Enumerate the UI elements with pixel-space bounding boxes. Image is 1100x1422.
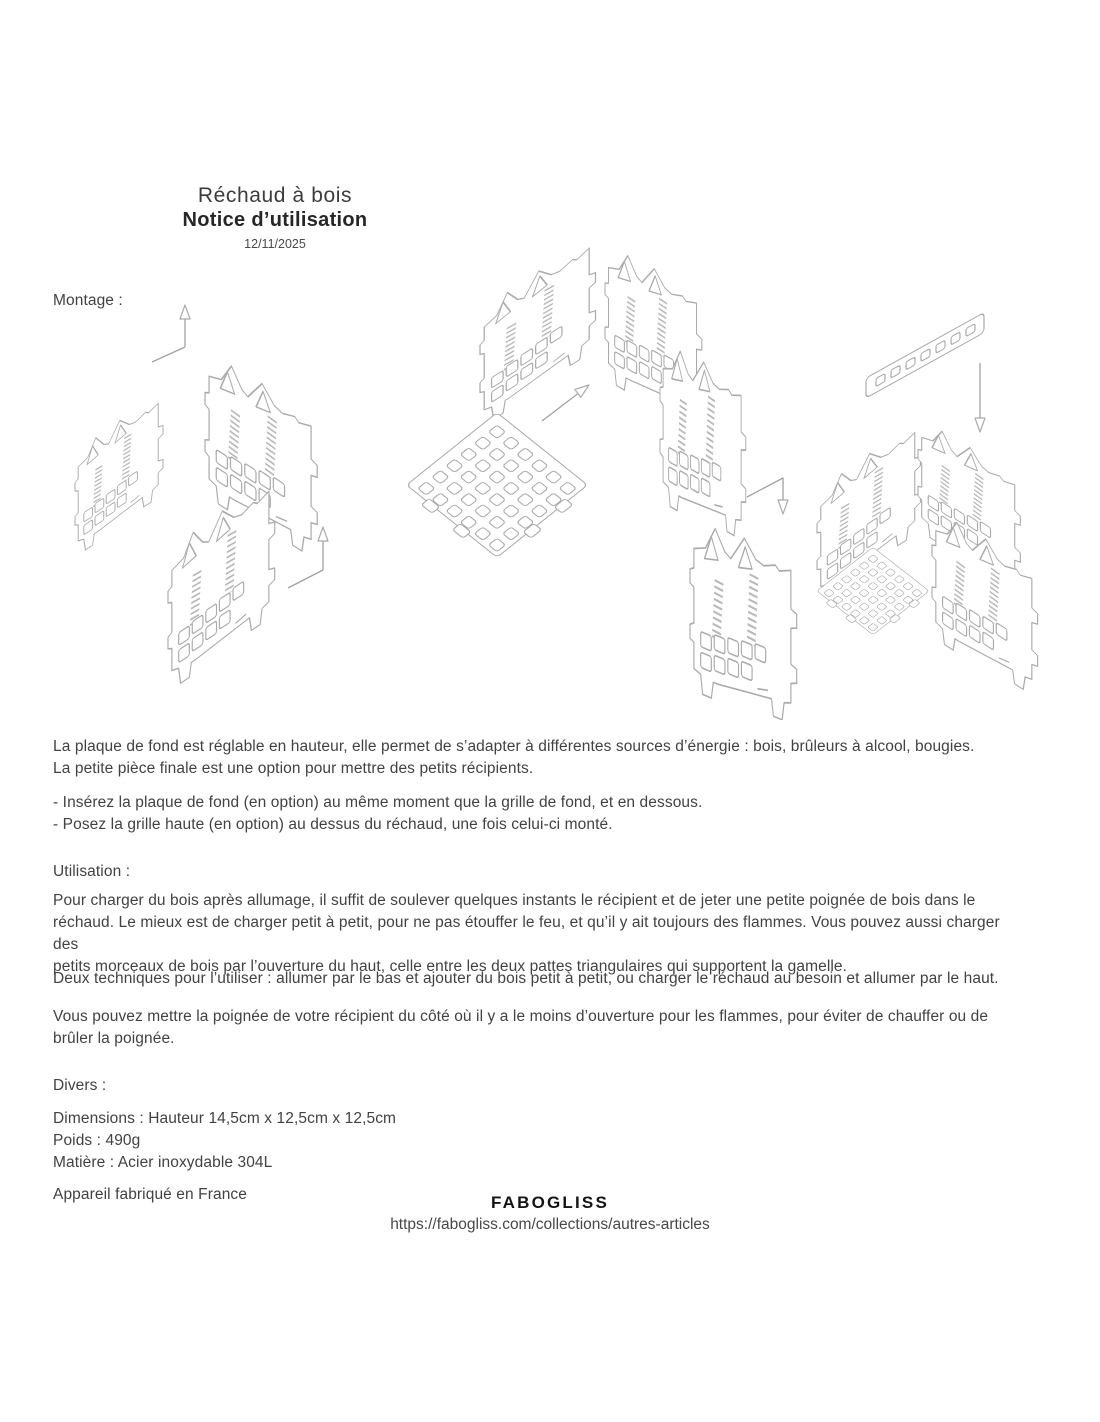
montage-bullet-list: - Insérez la plaque de fond (en option) … (53, 792, 1018, 836)
side-panel-left-3 (168, 477, 275, 691)
text-line: Deux techniques pour l’utiliser : allume… (53, 970, 999, 987)
spec-material: Matière : Acier inoxydable 304L (53, 1154, 272, 1171)
utilisation-paragraph-2: Deux techniques pour l’utiliser : allume… (53, 968, 1018, 990)
assembled-stove (814, 414, 1038, 705)
text-line: Vous pouvez mettre la poignée de votre r… (53, 1008, 988, 1025)
utilisation-paragraph-1: Pour charger du bois après allumage, il … (53, 890, 1018, 978)
fourth-side-panel (690, 515, 797, 720)
page-title: Réchaud à bois (115, 184, 435, 208)
utilisation-section-label: Utilisation : (53, 861, 1018, 883)
brand-logo: FABOGLISS (0, 1193, 1100, 1213)
arrowhead-icon (975, 418, 985, 432)
spec-weight: Poids : 490g (53, 1132, 140, 1149)
text-line: La petite pièce finale est une option po… (53, 760, 533, 777)
assembly-arrow-bent (747, 478, 783, 501)
page-subtitle: Notice d’utilisation (115, 209, 435, 232)
arrowhead-icon (778, 500, 788, 514)
assembly-arrow-middle (542, 392, 580, 421)
assembly-arrow-up-left-2 (288, 541, 323, 588)
text-line: La plaque de fond est réglable en hauteu… (53, 738, 974, 755)
u-assembly-right-panel (660, 337, 746, 550)
arrowhead-icon (180, 305, 190, 319)
utilisation-paragraph-3: Vous pouvez mettre la poignée de votre r… (53, 1006, 1018, 1050)
text-line: - Posez la grille haute (en option) au d… (53, 816, 613, 833)
text-line: - Insérez la plaque de fond (en option) … (53, 794, 702, 811)
site-url-link[interactable]: https://fabogliss.com/collections/autres… (0, 1216, 1100, 1234)
text-line: Pour charger du bois après allumage, il … (53, 892, 975, 909)
arrowhead-icon (575, 381, 592, 397)
montage-assembly-diagram (40, 235, 1060, 720)
assembly-arrow-up-left (152, 319, 185, 362)
divers-section-label: Divers : (53, 1075, 1018, 1097)
trivet-bar (866, 313, 984, 398)
u-assembly-left-panel (480, 236, 596, 428)
text-line: brûler la poignée. (53, 1030, 175, 1047)
side-panel-left-1 (75, 392, 163, 556)
document-page: Réchaud à bois Notice d’utilisation 12/1… (0, 0, 1100, 1422)
divers-specs: Dimensions : Hauteur 14,5cm x 12,5cm x 1… (53, 1108, 1018, 1174)
spec-dimensions: Dimensions : Hauteur 14,5cm x 12,5cm x 1… (53, 1110, 396, 1127)
text-line: réchaud. Le mieux est de charger petit à… (53, 914, 1000, 953)
arrowhead-icon (318, 527, 328, 541)
bottom-grid-plate (402, 413, 593, 566)
montage-paragraph-1: La plaque de fond est réglable en hauteu… (53, 736, 1018, 780)
